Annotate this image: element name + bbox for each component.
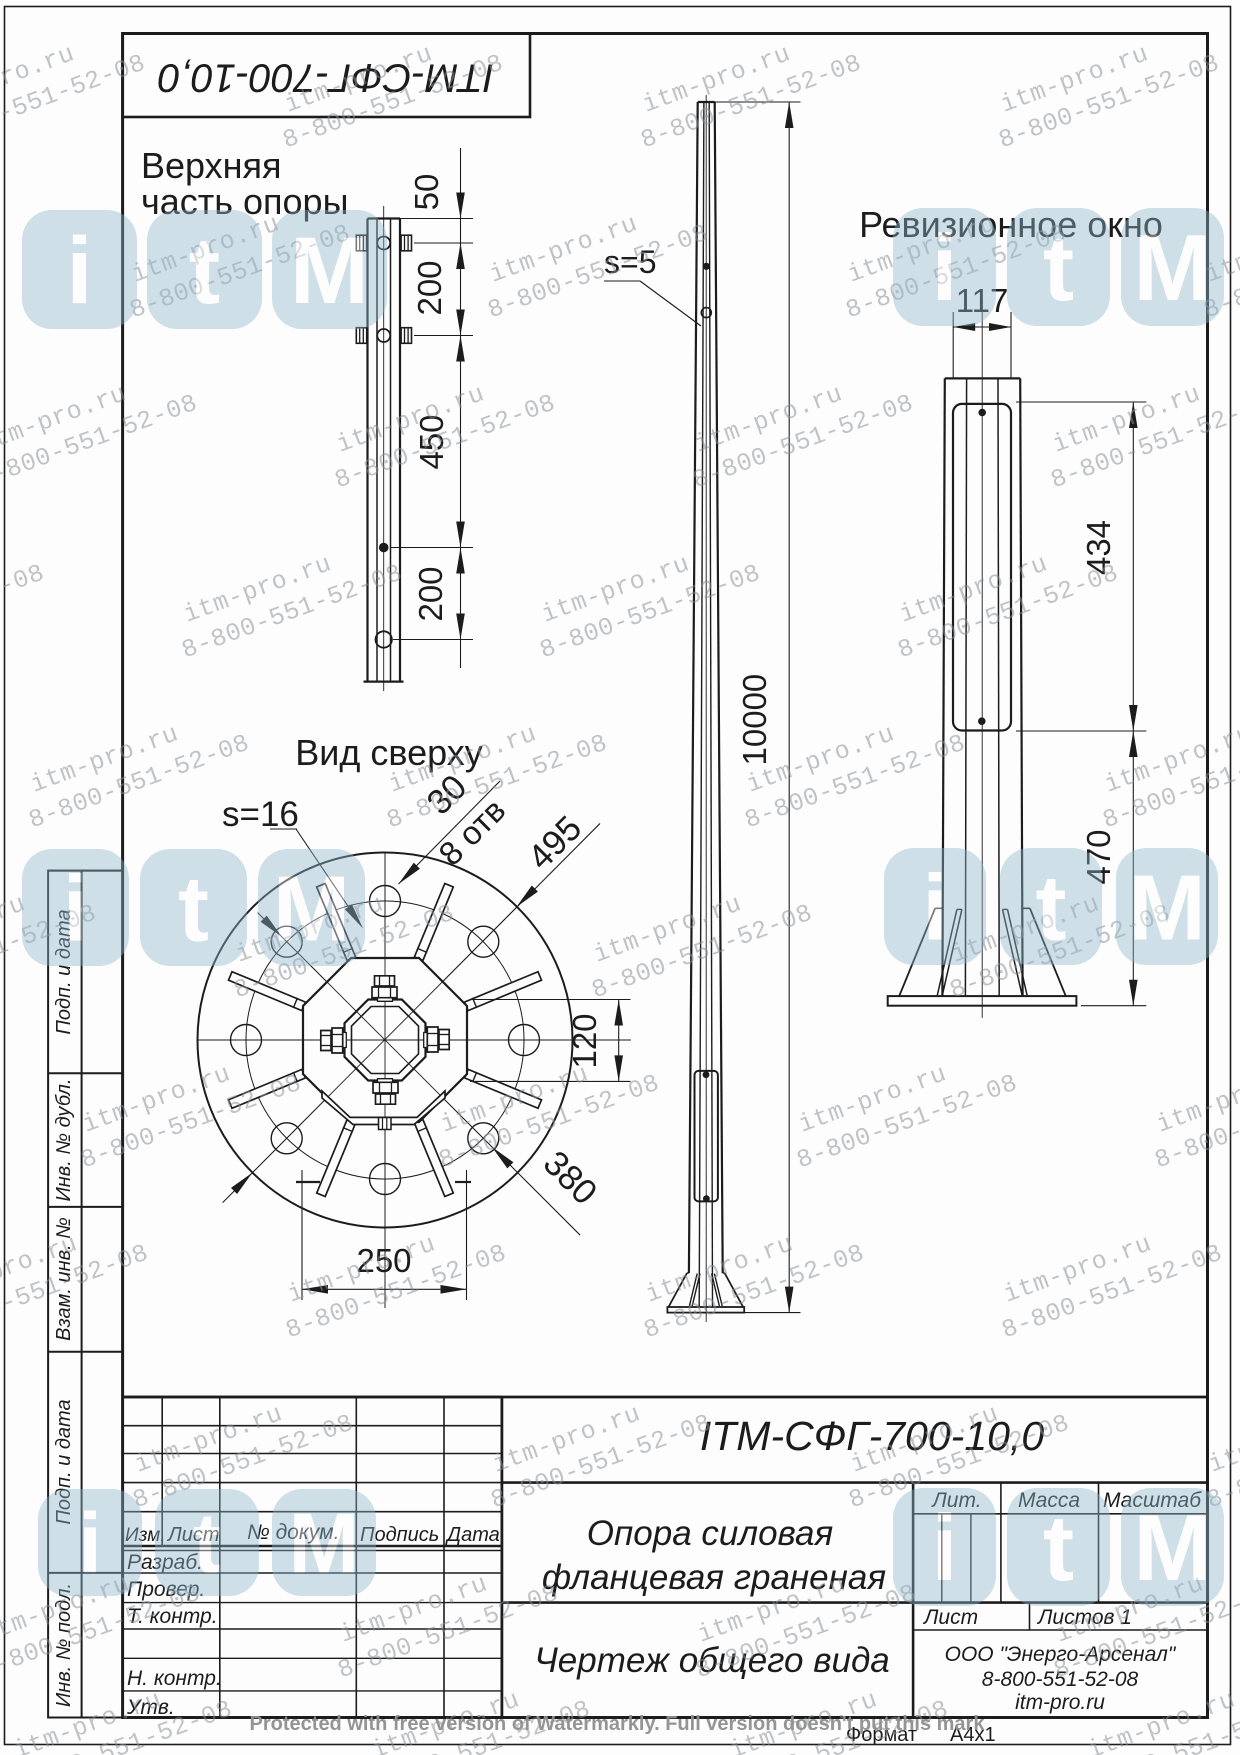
svg-text:200: 200 <box>411 260 448 315</box>
svg-text:itm-pro.ru: itm-pro.ru <box>1015 1691 1105 1714</box>
svg-text:M: M <box>1133 215 1211 320</box>
svg-text:Верхняя: Верхняя <box>141 145 282 186</box>
svg-text:200: 200 <box>412 566 449 621</box>
svg-text:t: t <box>1043 1495 1074 1600</box>
svg-text:M: M <box>290 218 369 324</box>
svg-text:t: t <box>189 218 221 324</box>
svg-text:Дата: Дата <box>445 1524 500 1546</box>
svg-text:Н. контр.: Н. контр. <box>127 1667 222 1690</box>
svg-text:i: i <box>922 855 948 959</box>
svg-text:t: t <box>1036 855 1067 959</box>
svg-text:M: M <box>1133 1495 1211 1600</box>
svg-text:M: M <box>273 856 350 960</box>
svg-text:M: M <box>289 1496 360 1591</box>
svg-text:120: 120 <box>566 1013 603 1068</box>
svg-text:Protected with free version of: Protected with free version of Watermark… <box>250 1713 986 1735</box>
svg-text:8-800-551-52-08: 8-800-551-52-08 <box>0 559 48 666</box>
svg-text:380: 380 <box>536 1143 605 1212</box>
svg-text:i: i <box>78 1496 102 1591</box>
svg-text:Опора силовая: Опора силовая <box>587 1514 833 1553</box>
svg-text:Лист: Лист <box>922 1606 978 1629</box>
svg-text:t: t <box>193 1496 221 1591</box>
svg-text:495: 495 <box>520 808 589 877</box>
svg-text:50: 50 <box>408 174 445 211</box>
svg-text:t: t <box>1043 215 1074 320</box>
svg-text:Инв. № дубл.: Инв. № дубл. <box>53 1079 75 1202</box>
svg-text:t: t <box>178 856 209 960</box>
svg-text:i: i <box>66 218 92 324</box>
svg-text:itm-pro.ru: itm-pro.ru <box>1205 1399 1240 1479</box>
svg-text:10000: 10000 <box>736 674 773 766</box>
svg-text:i: i <box>63 856 89 960</box>
svg-text:i: i <box>931 1495 957 1600</box>
svg-text:M: M <box>1128 855 1205 959</box>
svg-text:i: i <box>931 215 957 320</box>
svg-text:s=16: s=16 <box>222 795 299 834</box>
